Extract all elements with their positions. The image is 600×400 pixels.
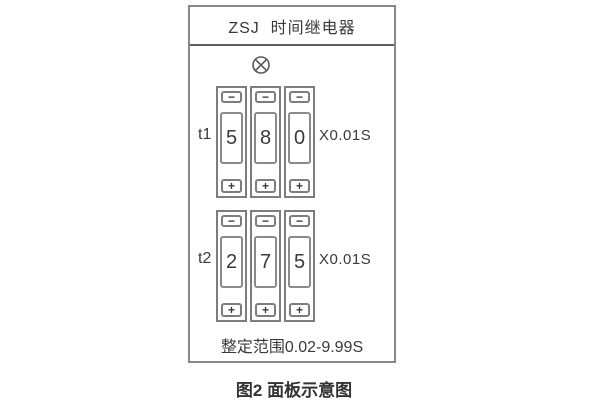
increment-button[interactable]: + bbox=[221, 303, 242, 317]
increment-button[interactable]: + bbox=[255, 179, 276, 193]
digit-window: 7 bbox=[254, 236, 277, 288]
decrement-button[interactable]: − bbox=[289, 215, 310, 227]
timer-label-t1: t1 bbox=[198, 126, 211, 144]
digit-window: 2 bbox=[220, 236, 243, 288]
digit-window: 5 bbox=[288, 236, 311, 288]
timer-row-t2: t2 − 2 + − 7 + − 5 + X0.01S bbox=[190, 210, 394, 322]
relay-panel: ZSJ 时间继电器 t1 − 5 + − 8 + bbox=[188, 5, 396, 363]
thumbwheel-column: − 7 + bbox=[250, 210, 281, 322]
panel-title: ZSJ 时间继电器 bbox=[228, 14, 355, 38]
thumbwheel-column: − 2 + bbox=[216, 210, 247, 322]
timer-row-t1: t1 − 5 + − 8 + − 0 + X0.01S bbox=[190, 86, 394, 198]
decrement-button[interactable]: − bbox=[255, 215, 276, 227]
increment-button[interactable]: + bbox=[255, 303, 276, 317]
thumbwheel-column: − 5 + bbox=[284, 210, 315, 322]
setting-range-text: 整定范围0.02-9.99S bbox=[190, 333, 394, 357]
thumbwheel-group-t1: − 5 + − 8 + − 0 + bbox=[216, 86, 315, 198]
thumbwheel-column: − 0 + bbox=[284, 86, 315, 198]
decrement-button[interactable]: − bbox=[289, 91, 310, 103]
digit-window: 8 bbox=[254, 112, 277, 164]
digit-window: 0 bbox=[288, 112, 311, 164]
figure-caption: 图2 面板示意图 bbox=[188, 376, 400, 400]
panel-header: ZSJ 时间继电器 bbox=[190, 7, 394, 46]
multiplier-label: X0.01S bbox=[319, 251, 371, 268]
multiplier-label: X0.01S bbox=[319, 127, 371, 144]
timer-label-t2: t2 bbox=[198, 250, 211, 268]
decrement-button[interactable]: − bbox=[221, 215, 242, 227]
thumbwheel-group-t2: − 2 + − 7 + − 5 + bbox=[216, 210, 315, 322]
thumbwheel-column: − 8 + bbox=[250, 86, 281, 198]
decrement-button[interactable]: − bbox=[255, 91, 276, 103]
increment-button[interactable]: + bbox=[221, 179, 242, 193]
indicator-lamp-icon bbox=[250, 54, 272, 76]
digit-window: 5 bbox=[220, 112, 243, 164]
increment-button[interactable]: + bbox=[289, 179, 310, 193]
decrement-button[interactable]: − bbox=[221, 91, 242, 103]
increment-button[interactable]: + bbox=[289, 303, 310, 317]
thumbwheel-column: − 5 + bbox=[216, 86, 247, 198]
figure-canvas: ZSJ 时间继电器 t1 − 5 + − 8 + bbox=[0, 0, 600, 400]
